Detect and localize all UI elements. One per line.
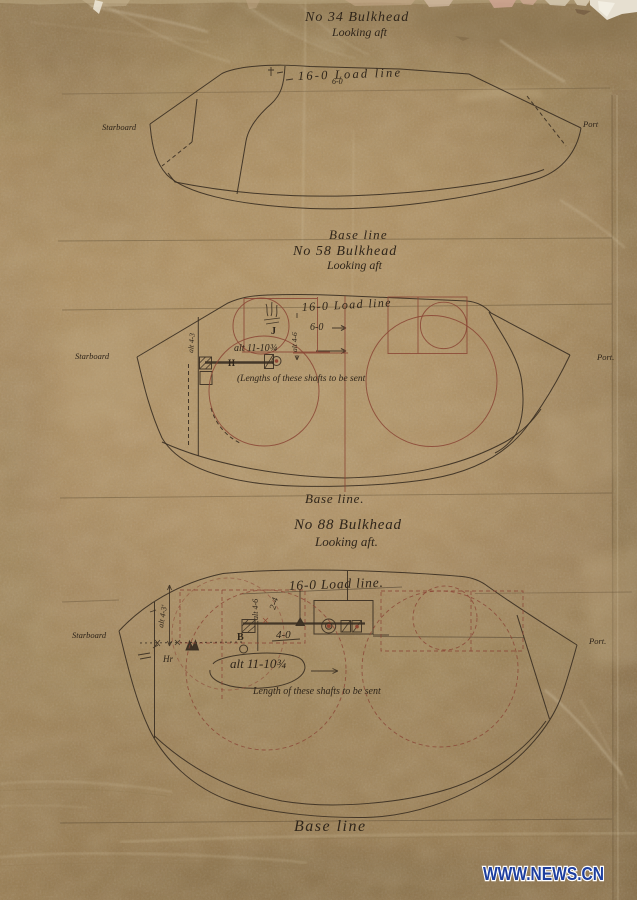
svg-text:Starboard: Starboard [72, 630, 107, 640]
svg-text:Starboard: Starboard [102, 122, 137, 132]
svg-text:No 58 Bulkhead: No 58 Bulkhead [292, 244, 397, 259]
svg-text:alt 4-6: alt 4-6 [251, 599, 260, 620]
svg-text:Port.: Port. [588, 636, 606, 646]
svg-text:(Lengths of these shafts to be: (Lengths of these shafts to be sent [237, 373, 366, 384]
svg-text:alt 4-3: alt 4-3 [186, 332, 197, 353]
svg-text:Port: Port [582, 119, 599, 129]
svg-text:Base line: Base line [329, 227, 388, 242]
svg-text:Looking aft: Looking aft [326, 258, 383, 272]
svg-text:No 34 Bulkhead: No 34 Bulkhead [304, 10, 409, 25]
svg-text:Looking aft: Looking aft [331, 25, 388, 39]
svg-text:B: B [237, 632, 244, 643]
svg-text:alt 11-10¾: alt 11-10¾ [230, 656, 286, 671]
svg-text:alt 11-10¾: alt 11-10¾ [234, 343, 278, 354]
svg-text:Length of these shafts to be s: Length of these shafts to be sent [252, 686, 381, 697]
svg-text:6-0: 6-0 [310, 322, 323, 333]
svg-text:Starboard: Starboard [75, 351, 110, 361]
svg-text:Port.: Port. [596, 352, 614, 362]
svg-text:H: H [228, 358, 235, 368]
svg-text:6-0: 6-0 [332, 77, 343, 86]
svg-text:alt 4-6: alt 4-6 [290, 332, 299, 352]
svg-text:Looking aft.: Looking aft. [314, 534, 378, 549]
svg-text:No 88 Bulkhead: No 88 Bulkhead [293, 517, 402, 533]
svg-text:WWW.NEWS.CN: WWW.NEWS.CN [483, 864, 604, 884]
svg-text:Base line: Base line [294, 818, 367, 835]
svg-text:J: J [271, 326, 276, 337]
svg-text:4-0: 4-0 [276, 629, 291, 641]
svg-text:Base line.: Base line. [305, 491, 364, 506]
svg-text:Hr: Hr [162, 654, 173, 664]
